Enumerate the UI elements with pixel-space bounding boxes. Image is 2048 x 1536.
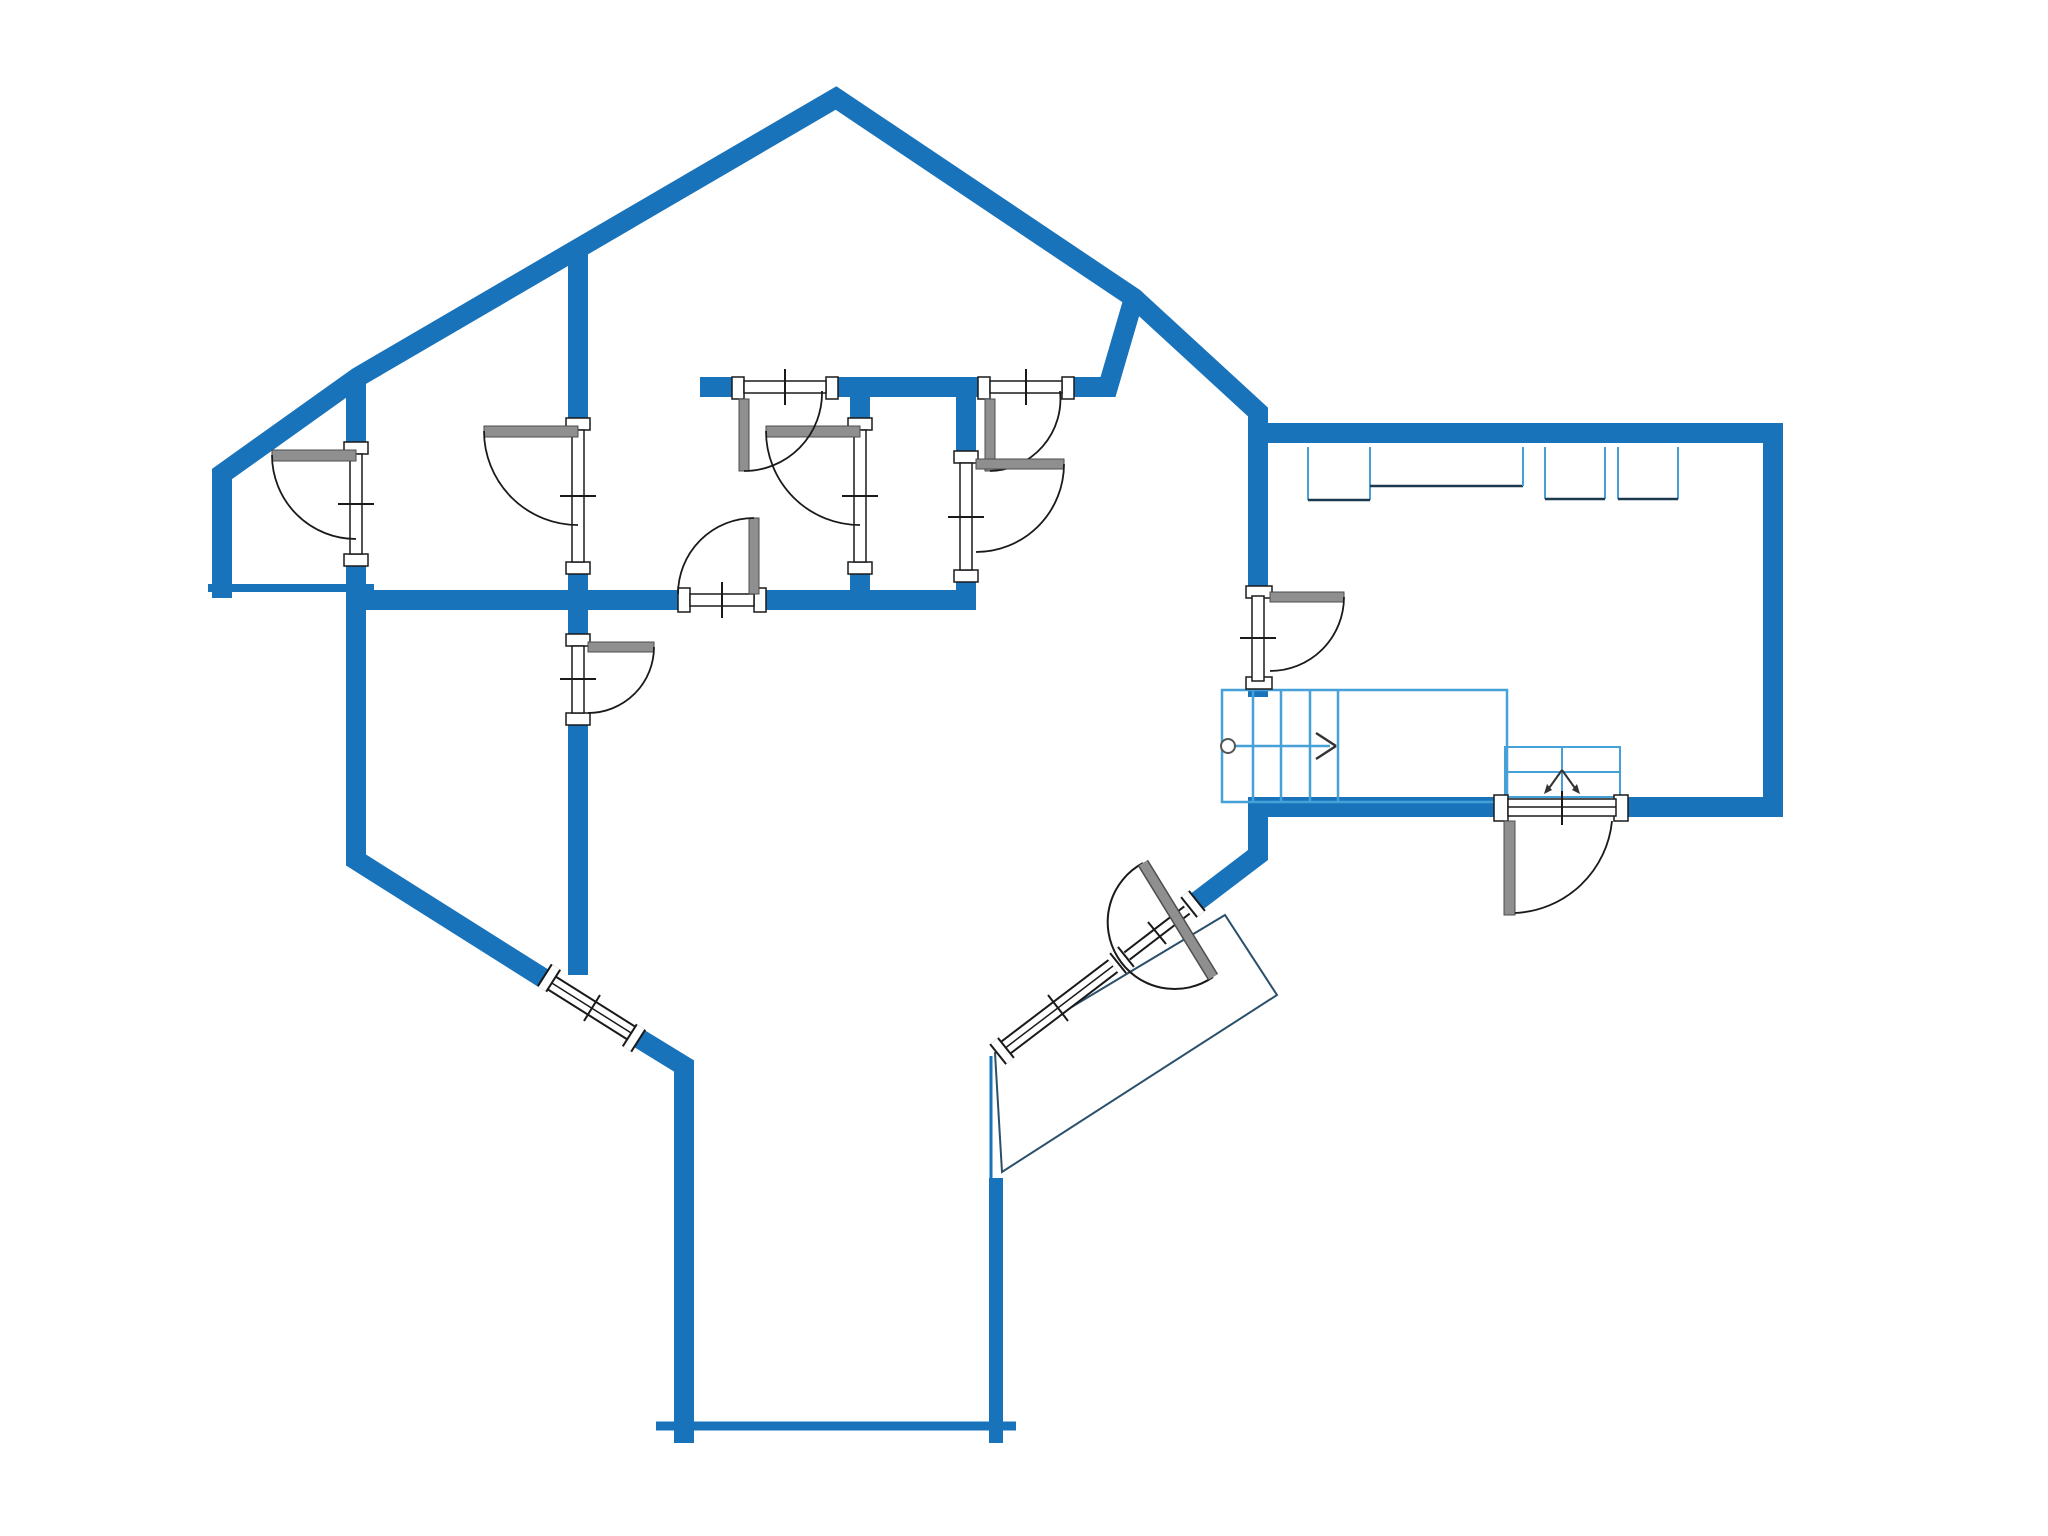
vestibule-door-jamb-bottom xyxy=(954,570,978,582)
top-room-door2-jamb-right xyxy=(1062,377,1074,399)
living-partition-door-leaf xyxy=(588,642,654,652)
entry-door-leaf xyxy=(1504,821,1515,915)
stairs-walk-start-circle xyxy=(1221,739,1235,753)
bedroom1-door-leaf xyxy=(484,426,578,437)
living-partition-door-jamb-top xyxy=(566,634,590,646)
right-wall-lower-diagonal xyxy=(1191,800,1258,906)
top-room-door1-leaf xyxy=(739,399,749,471)
annex-door-leaf xyxy=(1270,592,1344,602)
stairs-arrow-barb-down xyxy=(1316,746,1336,759)
vestibule-door-swing-arc xyxy=(976,464,1064,552)
vestibule-door-jamb-top xyxy=(954,451,978,463)
vestibule-door-leaf xyxy=(976,459,1064,469)
main-outline-wall xyxy=(222,98,1258,598)
floor-plan xyxy=(0,0,2048,1536)
top-room-door2-jamb-left xyxy=(978,377,990,399)
annex-door-swing-arc xyxy=(1270,597,1344,671)
porch-door-jamb-bottom xyxy=(344,554,368,566)
bedroom1-door-jamb-bottom xyxy=(566,562,590,574)
bedroom2-door-jamb-bottom xyxy=(848,562,872,574)
living-partition-door-jamb-bottom xyxy=(566,713,590,725)
bedroom1-door-swing-arc xyxy=(484,431,578,525)
left-wall-lower xyxy=(356,556,543,978)
terrace-door-leaf xyxy=(1143,863,1213,977)
entry-door-jamb-left xyxy=(1494,795,1508,821)
hall-door-leaf xyxy=(749,518,759,594)
porch-door-swing-arc xyxy=(272,455,356,539)
top-room-door1-jamb-right xyxy=(826,377,838,399)
living-partition-door-swing-arc xyxy=(588,647,654,713)
stairs-arrow-barb-up xyxy=(1316,733,1336,746)
hall-door-swing-arc xyxy=(678,518,754,594)
entry-door-swing-arc xyxy=(1515,821,1612,913)
hall-door-jamb-left xyxy=(678,588,690,612)
porch-door-leaf xyxy=(272,450,356,461)
corridor-left-wall xyxy=(640,1039,684,1443)
floor-plan-canvas xyxy=(0,0,2048,1536)
bedroom2-door-swing-arc xyxy=(766,431,860,525)
upper-wall-right-seg xyxy=(1066,298,1134,387)
top-room-door1-jamb-left xyxy=(732,377,744,399)
